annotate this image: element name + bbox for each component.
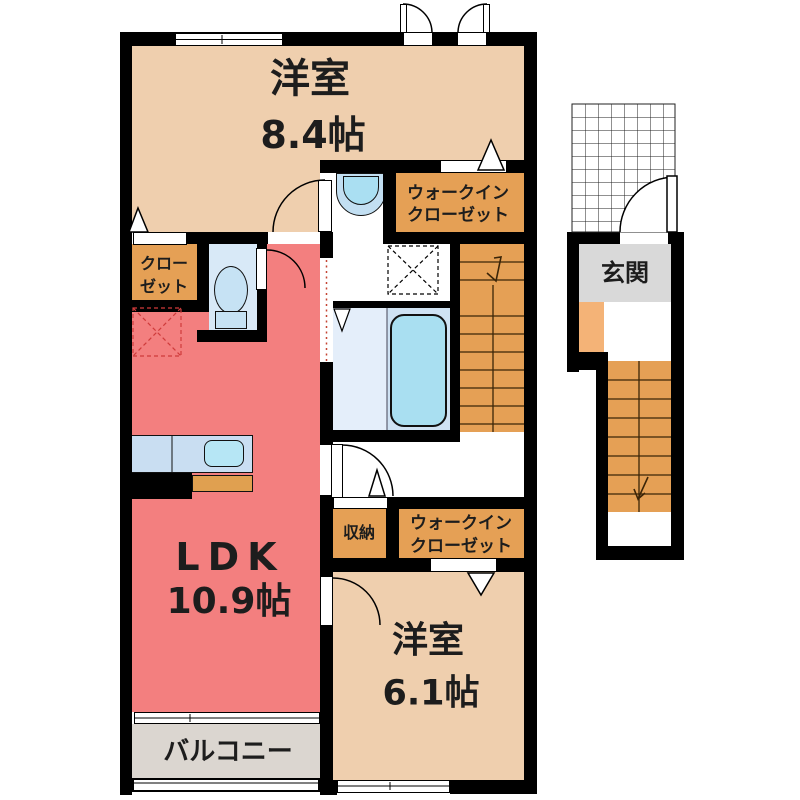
- bathroom-wash-area: [333, 308, 387, 430]
- balcony-label: バルコニー: [163, 739, 292, 765]
- double-door-opening-right: [457, 32, 487, 46]
- wall: [383, 160, 396, 244]
- wic-bottom-door-opening: [430, 558, 497, 572]
- wall: [596, 546, 684, 560]
- toilet-door-leaf: [256, 248, 267, 290]
- bedroom-bottom-door-leaf: [320, 576, 333, 626]
- wic-top-label-2: クローゼット: [407, 208, 509, 225]
- hallway-door-arc: [342, 445, 393, 496]
- wall: [132, 300, 209, 312]
- wall: [524, 32, 537, 794]
- sliding-door: [320, 258, 333, 362]
- toilet-tank: [215, 311, 247, 329]
- double-door-opening-left: [403, 32, 433, 46]
- wic-top-door-opening: [440, 160, 507, 173]
- ldk-area: 10.9帖: [167, 584, 292, 620]
- bedroom-bottom-area: 6.1帖: [382, 677, 479, 712]
- bedroom-top-name: 洋室: [270, 59, 350, 99]
- wall: [567, 232, 579, 372]
- double-door-arc-left: [403, 4, 432, 32]
- hallway-door-leaf: [331, 444, 343, 498]
- entrance-step: [579, 302, 604, 352]
- closet-label-2: ゼット: [140, 279, 188, 295]
- floor-plan: 洋室 8.4帖 ウォークイン クローゼット クロー ゼット LDK 10.9帖 …: [0, 0, 800, 800]
- entrance-door-leaf: [667, 176, 677, 232]
- closet-door-opening: [133, 232, 187, 245]
- entrance-stairs: [608, 361, 671, 512]
- porch-grid-hatch: [572, 104, 677, 232]
- wall: [257, 232, 267, 248]
- window-ldk-balcony: [134, 712, 320, 724]
- wall: [596, 352, 608, 558]
- balcony-railing: [132, 778, 320, 792]
- wall: [320, 626, 333, 795]
- wall: [320, 232, 333, 258]
- entrance-door-opening: [620, 232, 668, 244]
- wall: [497, 558, 524, 572]
- wic-bottom-label-2: クローゼット: [410, 539, 512, 556]
- interior-stairs: [460, 244, 524, 432]
- inspection-hatch-washroom: [388, 246, 438, 294]
- wall: [320, 160, 440, 173]
- storage-door-opening: [333, 497, 388, 509]
- wall: [333, 301, 460, 308]
- storage-door-triangle: [369, 470, 385, 496]
- wall: [197, 330, 267, 342]
- double-door-leaf-right: [483, 4, 490, 33]
- wall: [120, 32, 132, 795]
- wall: [671, 232, 684, 558]
- ldk-name: LDK: [175, 538, 284, 576]
- wall: [450, 232, 460, 438]
- double-door-leaf-left: [400, 4, 407, 33]
- passage-opening: [268, 232, 320, 244]
- wall: [388, 497, 524, 509]
- kitchen-counter-strip: [192, 475, 253, 492]
- closet-label-1: クロー: [140, 256, 188, 272]
- room-bedroom-top-lower: [132, 160, 320, 232]
- kitchen-end-panel: [131, 473, 192, 499]
- wic-bottom-label-1: ウォークイン: [410, 516, 512, 533]
- kitchen-sink-icon: [204, 440, 244, 467]
- wall: [320, 558, 430, 572]
- window-bedroom-bottom: [337, 780, 450, 793]
- wall: [507, 160, 524, 173]
- wall: [450, 780, 524, 794]
- entrance-label: 玄関: [601, 261, 649, 285]
- toilet-icon: [214, 266, 248, 314]
- storage-label: 収納: [343, 525, 375, 541]
- bedroom-top-door-leaf: [318, 180, 332, 232]
- bathtub-icon: [390, 314, 447, 427]
- bedroom-bottom-name: 洋室: [392, 623, 464, 659]
- wall: [320, 430, 460, 442]
- wic-top-label-1: ウォークイン: [407, 186, 509, 203]
- window-top: [175, 33, 283, 46]
- bedroom-top-area: 8.4帖: [260, 116, 365, 154]
